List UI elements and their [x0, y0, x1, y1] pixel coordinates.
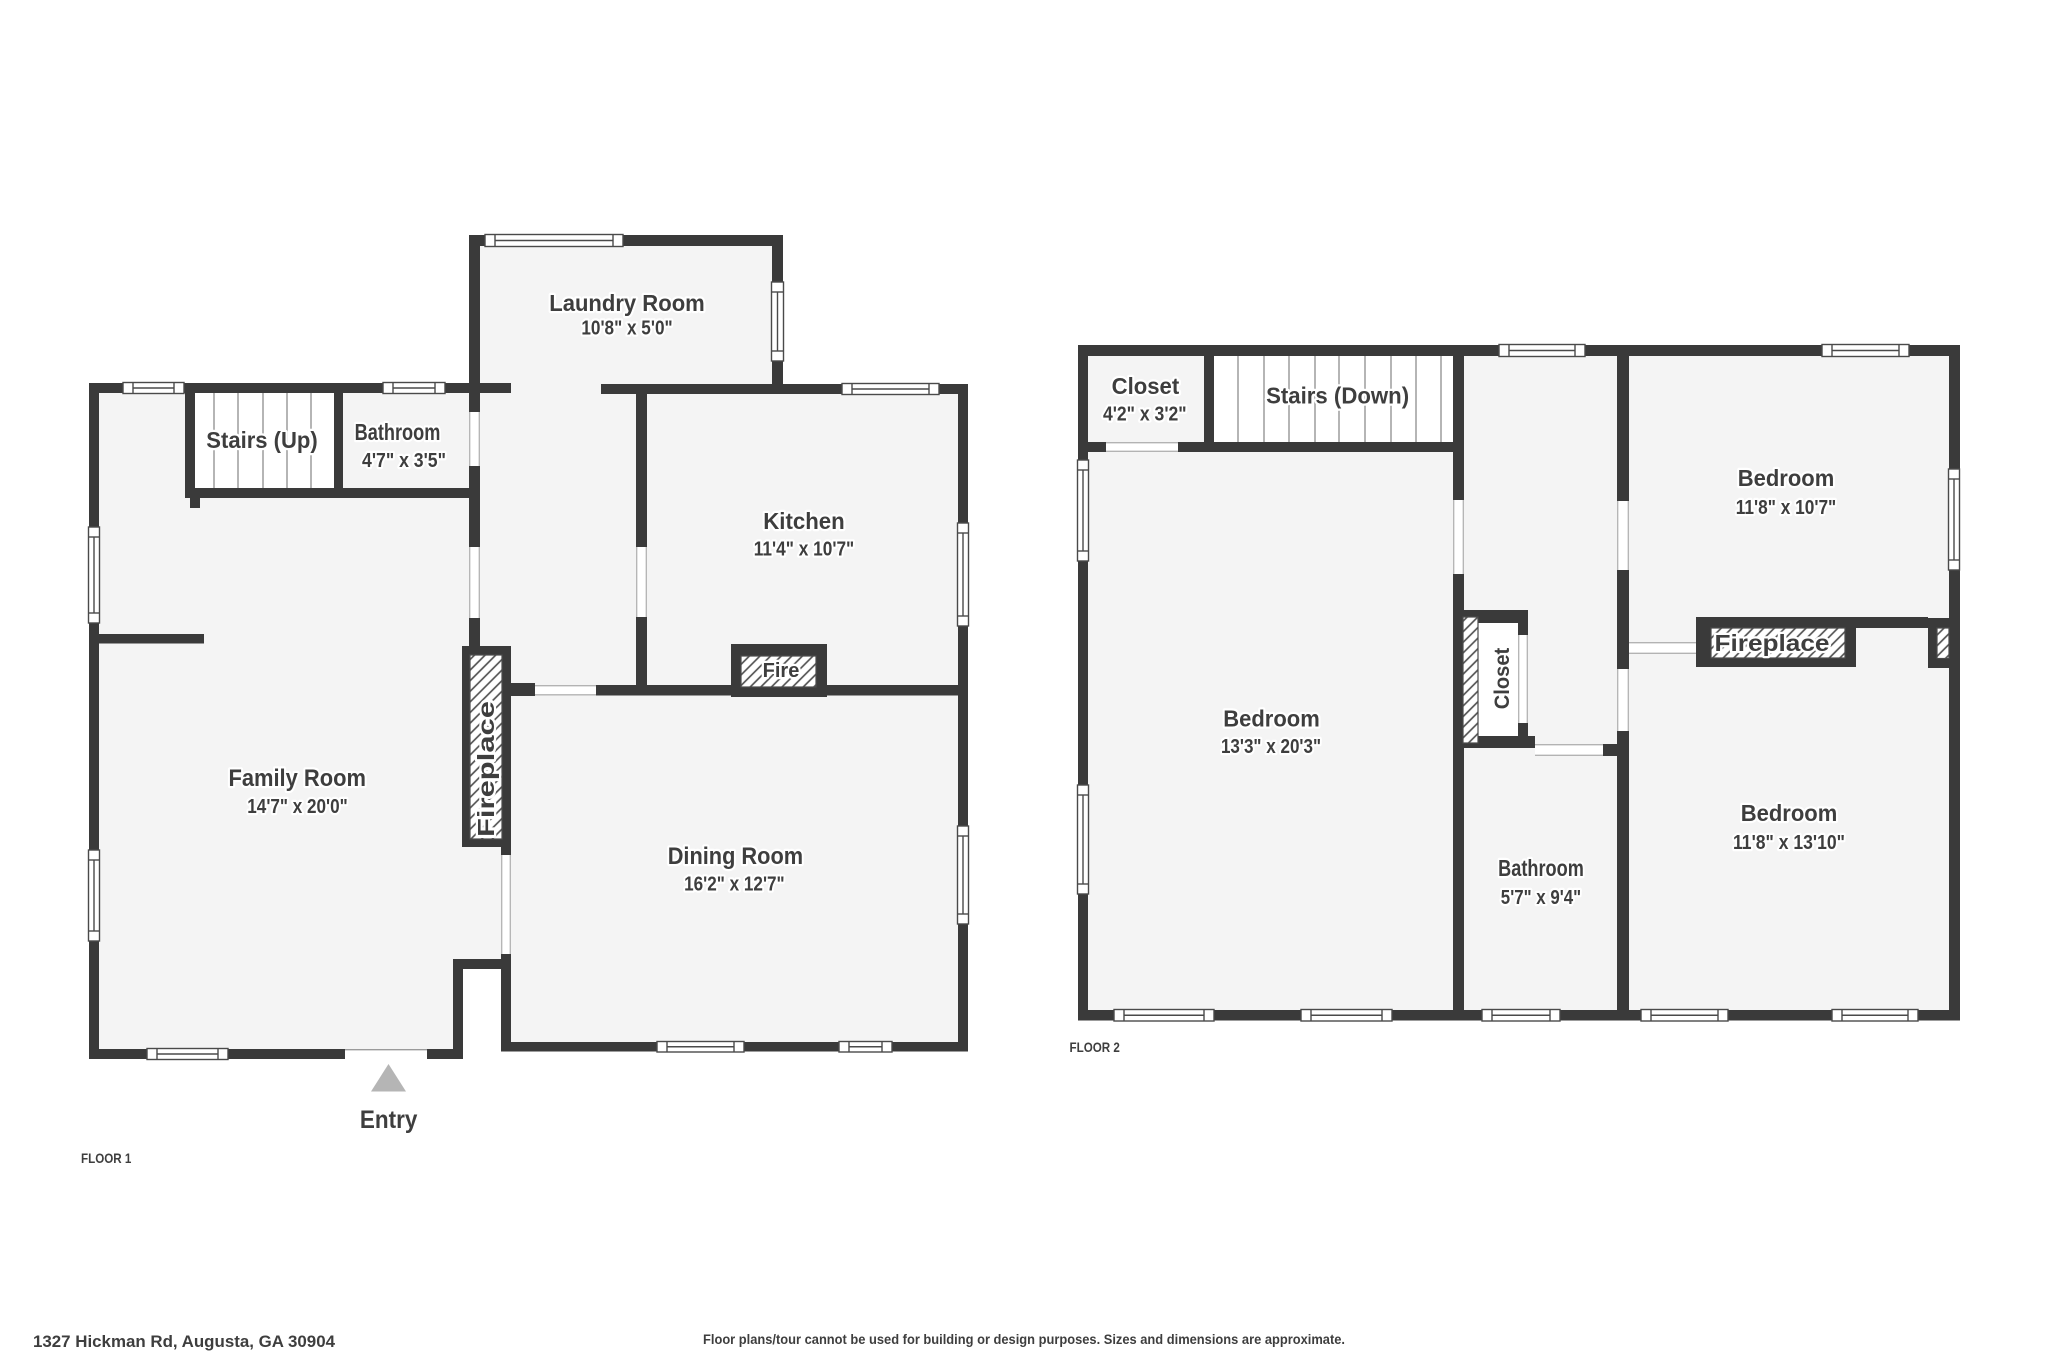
svg-text:11'4" x 10'7": 11'4" x 10'7": [754, 538, 855, 561]
svg-text:Bathroom: Bathroom: [355, 419, 441, 445]
svg-text:Kitchen: Kitchen: [763, 508, 845, 534]
svg-text:FLOOR 2: FLOOR 2: [1070, 1039, 1121, 1055]
svg-text:Stairs (Up): Stairs (Up): [206, 427, 317, 453]
svg-text:FLOOR 1: FLOOR 1: [81, 1150, 132, 1166]
svg-text:Closet: Closet: [1112, 373, 1180, 399]
svg-text:Bedroom: Bedroom: [1223, 706, 1320, 732]
svg-text:Bedroom: Bedroom: [1738, 465, 1835, 491]
svg-text:Entry: Entry: [360, 1106, 418, 1134]
svg-text:11'8" x 10'7": 11'8" x 10'7": [1736, 496, 1837, 519]
svg-text:14'7" x 20'0": 14'7" x 20'0": [247, 795, 347, 818]
svg-text:1327 Hickman Rd, Augusta, GA 3: 1327 Hickman Rd, Augusta, GA 30904: [33, 1332, 336, 1351]
svg-text:Floor plans/tour cannot be use: Floor plans/tour cannot be used for buil…: [703, 1332, 1345, 1347]
svg-text:10'8" x 5'0": 10'8" x 5'0": [581, 317, 672, 340]
svg-text:16'2" x 12'7": 16'2" x 12'7": [684, 873, 785, 896]
svg-text:11'8" x 13'10": 11'8" x 13'10": [1733, 831, 1845, 854]
svg-text:4'7" x 3'5": 4'7" x 3'5": [362, 450, 446, 472]
svg-text:Bathroom: Bathroom: [1498, 855, 1584, 881]
svg-text:13'3" x 20'3": 13'3" x 20'3": [1221, 735, 1321, 758]
svg-text:Dining Room: Dining Room: [668, 843, 803, 870]
svg-text:Laundry Room: Laundry Room: [549, 290, 705, 316]
svg-text:Fireplace: Fireplace: [1715, 630, 1830, 656]
svg-text:5'7" x 9'4": 5'7" x 9'4": [1501, 886, 1581, 909]
svg-text:Fire: Fire: [763, 660, 800, 682]
svg-text:4'2" x 3'2": 4'2" x 3'2": [1103, 404, 1187, 426]
svg-text:Bedroom: Bedroom: [1741, 800, 1838, 826]
svg-text:Closet: Closet: [1491, 648, 1514, 710]
svg-text:Stairs (Down): Stairs (Down): [1266, 383, 1409, 409]
svg-text:Fireplace: Fireplace: [473, 701, 499, 837]
svg-text:Family Room: Family Room: [228, 765, 366, 792]
